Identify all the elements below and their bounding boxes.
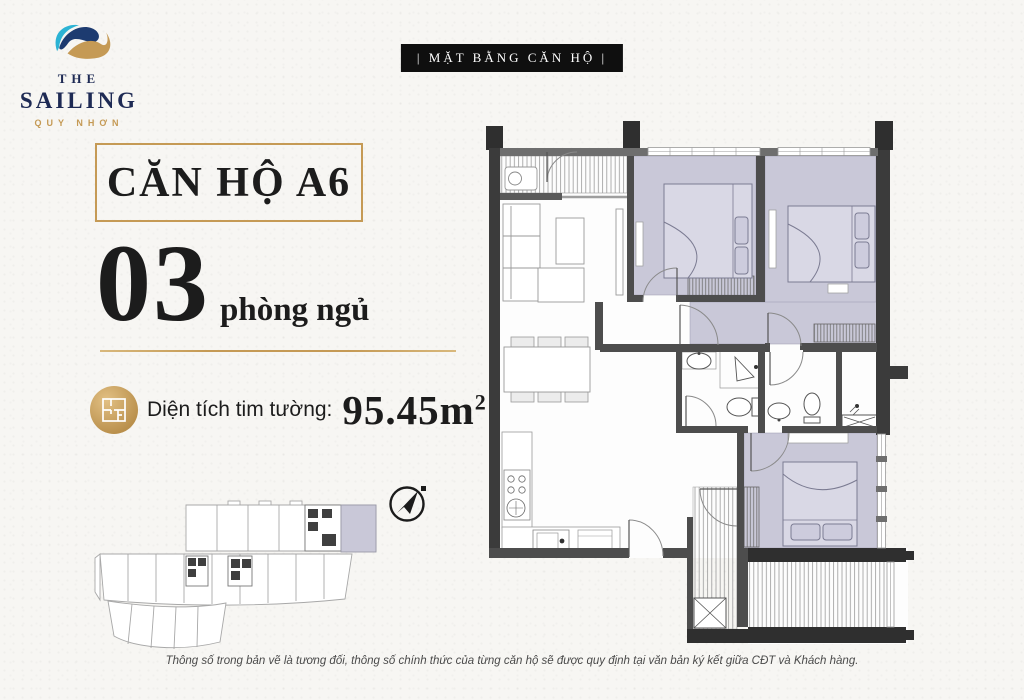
floor-plan-icon: [90, 386, 138, 434]
brand-logo: THE SAILING QUY NHƠN: [18, 20, 140, 128]
area-number: 95.45m: [342, 387, 474, 433]
key-plan-highlighted-unit: [341, 505, 376, 552]
wardrobe-2: [814, 324, 875, 342]
poster: THE SAILING QUY NHƠN | MẶT BẰNG CĂN HỘ |…: [0, 0, 1024, 700]
bedrooms-stat: 03 phòng ngủ: [96, 234, 370, 344]
bedrooms-count: 03: [96, 234, 210, 332]
dining-set: [504, 337, 590, 402]
page-badge: | MẶT BẰNG CĂN HỘ |: [401, 44, 623, 72]
unit-title-box: CĂN HỘ A6: [95, 143, 363, 222]
logo-word-the: THE: [18, 71, 140, 87]
wardrobe-1: [688, 276, 754, 296]
ac-ledge: [694, 598, 726, 628]
wave-logo-icon: [18, 20, 140, 68]
building-key-plan: [92, 492, 384, 650]
gold-divider: [100, 350, 456, 352]
disclaimer-text: Thông số trong bản vẽ là tương đối, thôn…: [0, 655, 1024, 667]
wardrobe-3: [744, 487, 759, 547]
apartment-floor-plan: [483, 115, 915, 655]
logo-word-city: QUY NHƠN: [18, 118, 140, 128]
area-stat: Diện tích tim tường: 95.45m2: [90, 386, 487, 434]
unit-title: CĂN HỘ A6: [107, 159, 351, 207]
area-label: Diện tích tim tường:: [147, 398, 332, 422]
north-arrow-icon: [384, 480, 432, 528]
logo-word-sailing: SAILING: [18, 88, 140, 114]
area-value: 95.45m2: [342, 390, 486, 431]
balcony-bottom-right: [748, 562, 887, 627]
bedrooms-label: phòng ngủ: [220, 292, 370, 329]
